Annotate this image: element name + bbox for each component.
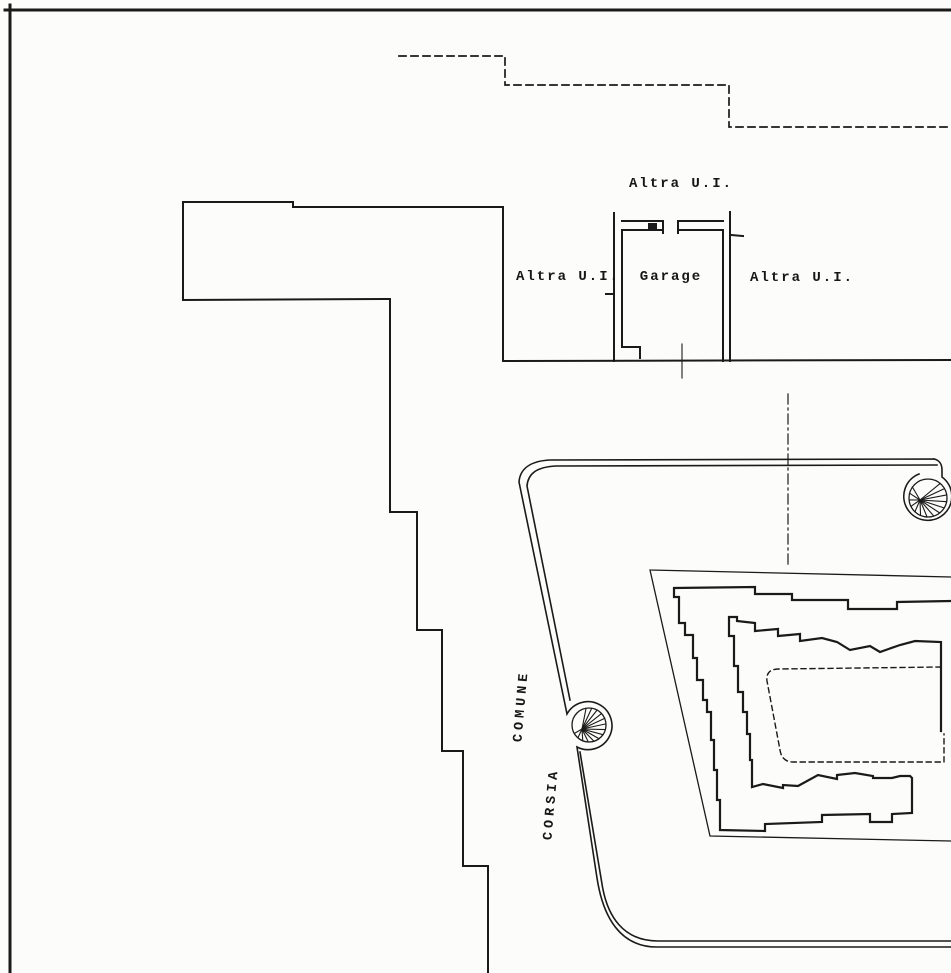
driveway-inner-edge	[527, 465, 951, 941]
label-altra-ui-left: Altra U.I.	[516, 269, 620, 285]
ramp-spiral-right-spoke	[920, 495, 947, 500]
driveway-outer-edge	[519, 459, 951, 947]
garage-right-wall	[723, 212, 743, 361]
courtyard-dashed-outline	[767, 667, 944, 762]
spiral-ramp-icon-left	[572, 708, 606, 742]
label-garage: Garage	[640, 269, 702, 285]
ramp-spiral-left-spoke	[582, 729, 583, 741]
site-plan-drawing	[0, 0, 951, 973]
parcel-boundary	[650, 570, 951, 841]
property-baseline	[503, 360, 951, 361]
ramp-spiral-right-spoke	[920, 500, 921, 515]
spiral-ramp-icon-right	[909, 479, 947, 517]
garage-walls	[606, 212, 743, 378]
common-driveway	[519, 459, 951, 947]
garage-top-wall	[622, 221, 723, 233]
plan-sheet: Altra U.I. Altra U.I. Garage Altra U.I. …	[0, 0, 951, 973]
garage-left-wall	[606, 213, 640, 361]
building-outline	[674, 587, 951, 831]
garage-door-hinge-mark	[648, 223, 657, 230]
label-altra-ui-top: Altra U.I.	[629, 176, 733, 192]
label-altra-ui-right: Altra U.I.	[750, 270, 854, 286]
boundary-dashed-line	[399, 56, 951, 127]
adjacent-unit-outline	[183, 202, 503, 973]
